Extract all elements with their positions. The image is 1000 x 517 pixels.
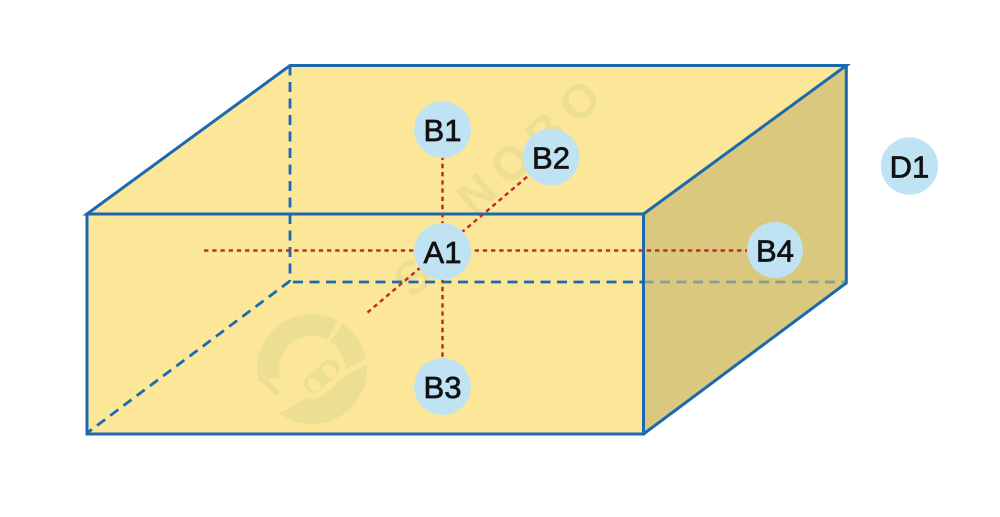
svg-text:B4: B4 — [756, 234, 794, 269]
svg-text:B2: B2 — [532, 141, 570, 176]
svg-text:B1: B1 — [424, 113, 462, 148]
svg-text:D1: D1 — [890, 150, 930, 185]
svg-text:A1: A1 — [424, 235, 462, 270]
svg-text:B3: B3 — [424, 370, 462, 405]
